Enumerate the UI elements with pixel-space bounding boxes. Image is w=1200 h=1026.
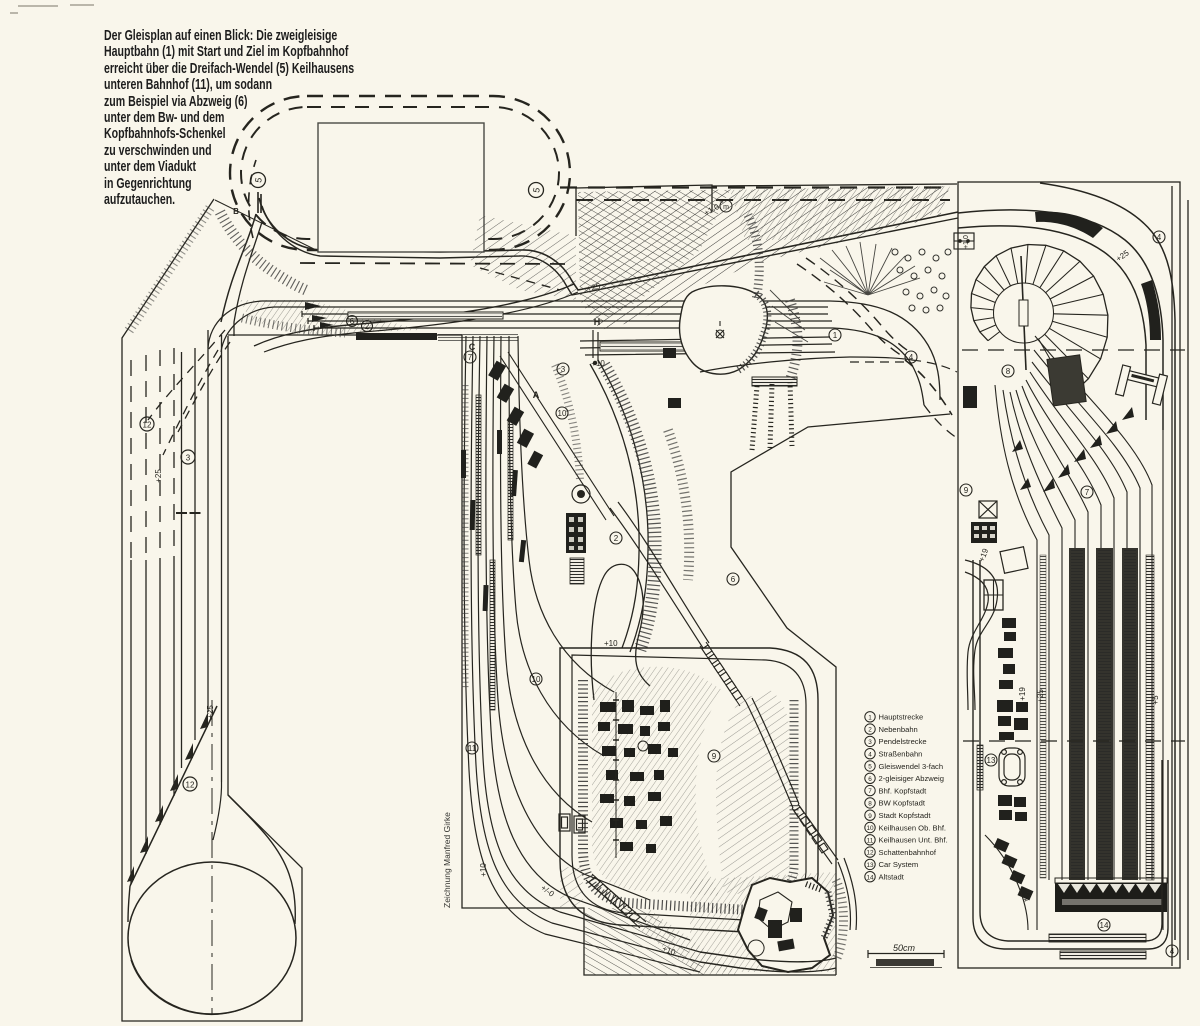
svg-text:10: 10 xyxy=(558,409,567,418)
svg-text:13: 13 xyxy=(987,756,996,765)
svg-text:Pendelstrecke: Pendelstrecke xyxy=(879,737,927,746)
svg-text:8: 8 xyxy=(868,801,872,808)
svg-text:6: 6 xyxy=(350,317,355,326)
svg-text:10: 10 xyxy=(866,825,874,832)
svg-text:2-gleisiger Abzweig: 2-gleisiger Abzweig xyxy=(879,774,944,783)
svg-text:4: 4 xyxy=(1157,233,1162,242)
svg-text:4: 4 xyxy=(1170,947,1175,956)
svg-text:12: 12 xyxy=(866,850,874,857)
svg-text:C: C xyxy=(469,342,476,352)
svg-text:7: 7 xyxy=(468,353,473,362)
svg-text:+5: +5 xyxy=(1151,695,1160,705)
svg-text:11: 11 xyxy=(867,837,874,844)
svg-text:Stadt Kopfstadt: Stadt Kopfstadt xyxy=(879,811,932,820)
svg-text:+25: +25 xyxy=(1114,248,1131,263)
svg-text:+10: +10 xyxy=(591,359,605,368)
svg-text:+10: +10 xyxy=(479,863,488,877)
svg-text:4: 4 xyxy=(868,751,872,758)
svg-text:A: A xyxy=(533,390,540,400)
svg-text:BW Kopfstadt: BW Kopfstadt xyxy=(879,799,926,808)
svg-text:12: 12 xyxy=(186,781,195,790)
svg-text:2: 2 xyxy=(868,727,872,734)
svg-text:9: 9 xyxy=(868,813,872,820)
svg-text:Keilhausen Ob. Bhf.: Keilhausen Ob. Bhf. xyxy=(879,823,947,832)
svg-text:12: 12 xyxy=(143,421,152,430)
svg-text:m: m xyxy=(723,204,729,211)
svg-text:+1.0: +1.0 xyxy=(963,235,970,249)
svg-text:B: B xyxy=(233,207,239,216)
svg-text:+19: +19 xyxy=(977,547,990,563)
svg-text:+19: +19 xyxy=(1018,687,1027,701)
svg-text:Gleiswendel 3-fach: Gleiswendel 3-fach xyxy=(879,762,944,771)
svg-text:1: 1 xyxy=(833,331,838,340)
svg-text:2: 2 xyxy=(365,322,370,331)
svg-text:7: 7 xyxy=(868,788,872,795)
svg-text:6: 6 xyxy=(868,776,872,783)
svg-text:14: 14 xyxy=(1100,921,1109,930)
svg-text:Altstadt: Altstadt xyxy=(879,873,905,882)
svg-text:8: 8 xyxy=(1006,367,1011,376)
svg-text:+25: +25 xyxy=(206,705,215,719)
svg-text:5: 5 xyxy=(868,764,872,771)
svg-text:1: 1 xyxy=(868,714,872,721)
svg-text:7: 7 xyxy=(1085,488,1090,497)
svg-text:3: 3 xyxy=(868,739,872,746)
svg-text:Bhf. Kopfstadt: Bhf. Kopfstadt xyxy=(879,786,928,795)
svg-text:+10: +10 xyxy=(604,639,618,648)
svg-text:Schattenbahnhof: Schattenbahnhof xyxy=(879,848,937,857)
svg-text:Straßenbahn: Straßenbahn xyxy=(879,750,923,759)
svg-text:5: 5 xyxy=(253,177,264,184)
svg-text:6: 6 xyxy=(731,575,736,584)
svg-text:Zeichnung Manfred Girke: Zeichnung Manfred Girke xyxy=(442,812,452,908)
svg-text:5: 5 xyxy=(531,187,542,194)
svg-text:3: 3 xyxy=(561,365,566,374)
svg-text:Hauptstrecke: Hauptstrecke xyxy=(879,713,924,722)
svg-text:+25: +25 xyxy=(1036,689,1045,703)
svg-text:10: 10 xyxy=(532,675,541,684)
svg-text:+/-0: +/-0 xyxy=(539,883,556,899)
svg-text:50cm: 50cm xyxy=(893,943,916,953)
svg-text:14: 14 xyxy=(866,874,874,881)
svg-text:Nebenbahn: Nebenbahn xyxy=(879,725,918,734)
svg-text:13: 13 xyxy=(866,862,874,869)
svg-text:4: 4 xyxy=(909,353,914,362)
svg-text:2: 2 xyxy=(614,534,619,543)
svg-text:9: 9 xyxy=(964,486,969,495)
svg-text:Car System: Car System xyxy=(879,860,919,869)
svg-text:Keilhausen Unt. Bhf.: Keilhausen Unt. Bhf. xyxy=(879,836,948,845)
svg-text:9: 9 xyxy=(712,752,717,761)
svg-text:+25: +25 xyxy=(154,469,163,483)
svg-text:11: 11 xyxy=(468,744,477,753)
svg-text:3: 3 xyxy=(186,454,191,463)
svg-text:H: H xyxy=(594,317,601,327)
